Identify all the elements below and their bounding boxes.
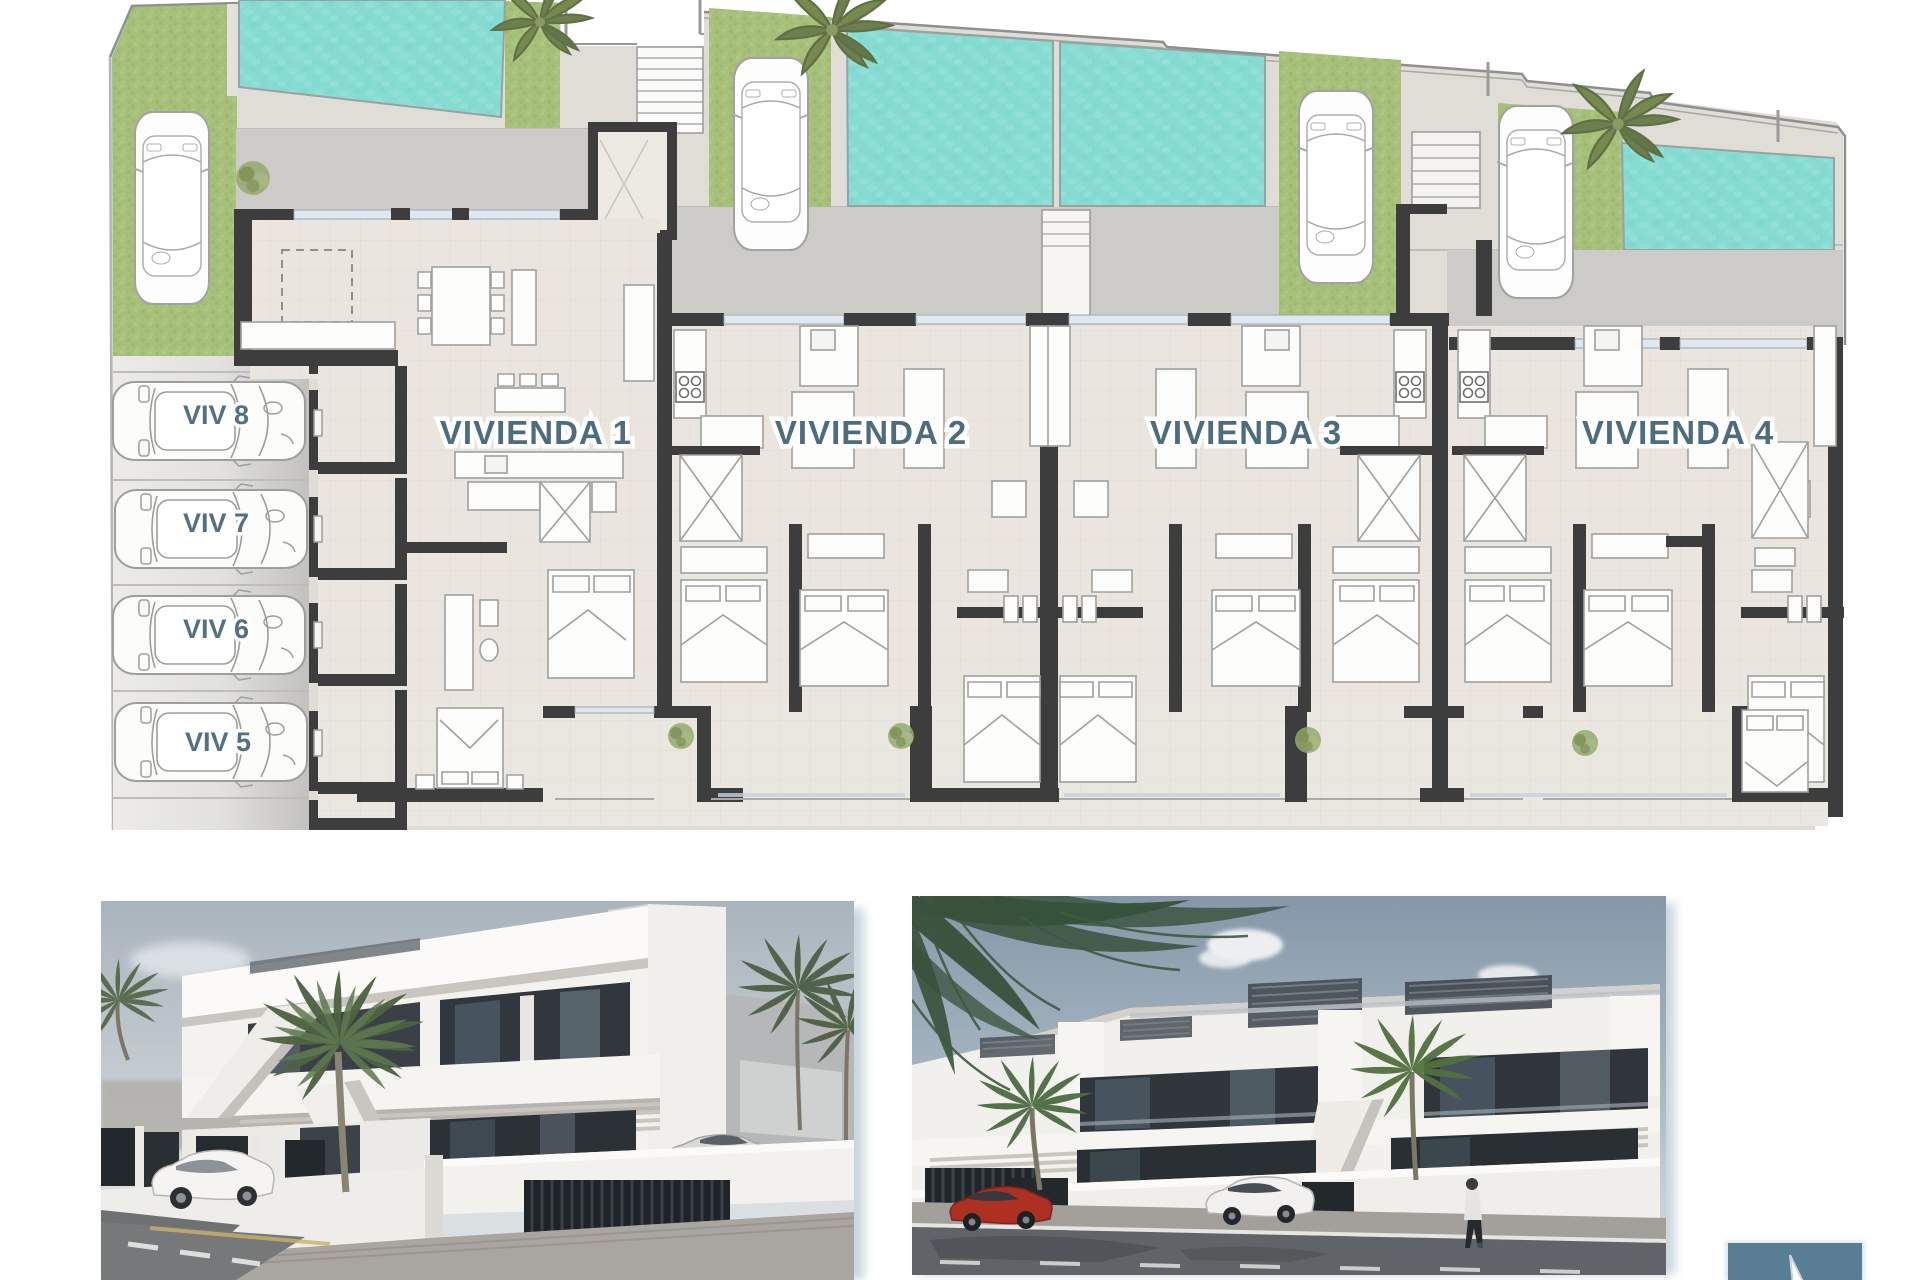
svg-text:VIVIENDA 1: VIVIENDA 1 xyxy=(440,414,632,451)
svg-text:VIVIENDA 3: VIVIENDA 3 xyxy=(1150,414,1342,451)
svg-text:VIV 7: VIV 7 xyxy=(183,508,249,538)
svg-text:VIV 5: VIV 5 xyxy=(185,727,251,757)
svg-text:VIVIENDA 2: VIVIENDA 2 xyxy=(775,414,967,451)
svg-text:VIV 6: VIV 6 xyxy=(183,614,249,644)
svg-text:VIVIENDA 4: VIVIENDA 4 xyxy=(1582,414,1774,451)
svg-text:VIV 8: VIV 8 xyxy=(183,400,249,430)
